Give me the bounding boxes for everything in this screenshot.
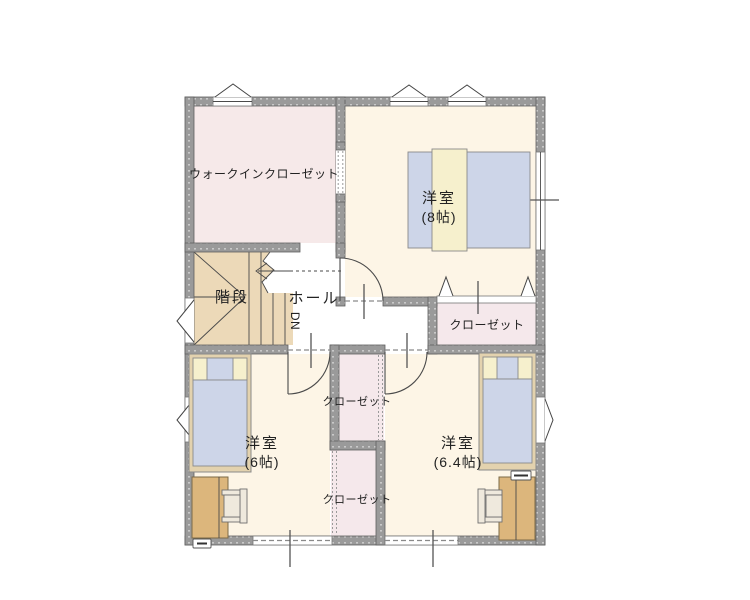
walk-in-closet-label: ウォークインクローゼット [189,167,339,181]
closet-lower-area [331,450,376,536]
wall-stub-hall-top [336,243,345,258]
closet-lower-label: クローゼット [323,493,392,506]
desk-bedroom6 [192,477,228,538]
closet-main-label: クローゼット [449,318,524,332]
window-top-bedroom8-2 [448,85,486,106]
closet-upper-label: クローゼット [323,395,392,408]
bedroom6-size: (6帖) [244,454,279,470]
bedroom64-size: (6.4帖) [434,454,483,470]
bedroom8-size: (8帖) [421,209,456,225]
wall-stairs-bottom [185,345,288,354]
down-marker: DN [288,312,302,330]
bedroom8-label: 洋室 [422,190,456,207]
wall-midcloset-right [376,441,385,545]
chair-bedroom6 [222,489,247,523]
window-top-wic [213,84,252,106]
chair-bedroom64 [478,489,502,523]
hall-label: ホール [288,290,339,307]
window-top-bedroom8-1 [390,85,428,106]
window-right-bedroom64 [536,397,553,443]
window-left-stairs [177,298,194,343]
desk-bedroom64 [499,477,535,540]
floor-plan-page: ウォークインクローゼット 洋室 (8帖) 階段 ホール DN クローゼット クロ… [0,0,750,600]
floor-plan: ウォークインクローゼット 洋室 (8帖) 階段 ホール DN クローゼット クロ… [0,0,750,600]
wall-bottom [185,536,545,545]
bed-single-bedroom6 [189,354,251,472]
stairs-label: 階段 [215,289,249,306]
bedroom6-label: 洋室 [245,435,279,452]
wall-wic-bottom [185,243,300,252]
bed-single-bedroom64 [479,353,536,470]
bedroom64-label: 洋室 [441,435,475,452]
